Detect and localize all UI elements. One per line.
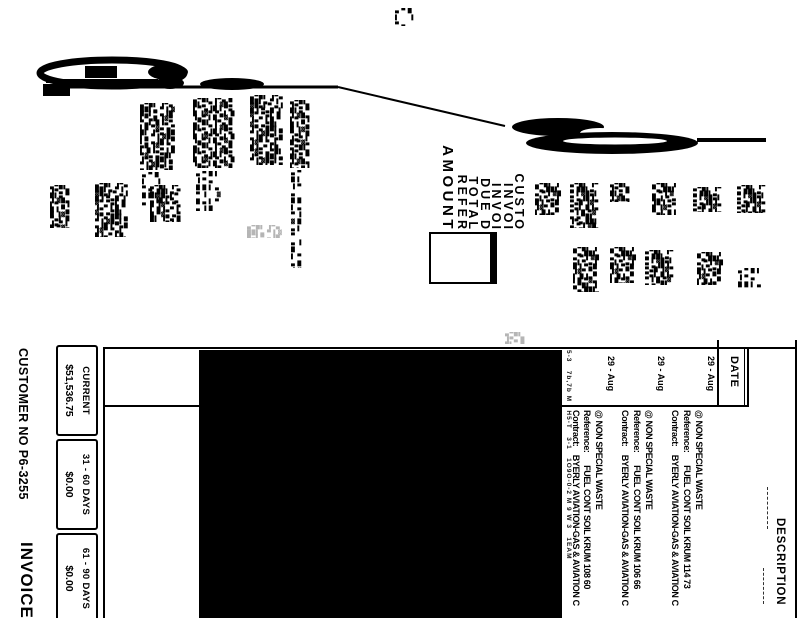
row-date: 29 - Aug [606,356,616,406]
amount-enclosed-box [429,232,497,284]
row-date: 29 - Aug [656,356,666,406]
row-contract: Contract: BYERLY AVIATION-GAS & AVIATION… [571,410,581,618]
remit-label-reference: REFER [456,175,467,232]
aging-header: 31 - 60 DAYS [80,454,91,515]
date-cell-top-border-2 [744,347,745,407]
remit-stub-labels: CUSTO INVOI INVOI DUE D TOTAL REFER AMOU… [439,95,524,232]
aging-header: CURRENT [80,366,91,415]
row-item: @ NON SPECIAL WASTE [594,410,604,618]
aging-value: $0.00 [63,565,75,591]
row-contract: Contract: BYERLY AVIATION-GAS & AVIATION… [670,410,680,618]
remit-label-due-date: DUE D [478,178,489,232]
date-cell-bottom-border [717,340,719,407]
dotted-rule [763,568,764,604]
scan-artifact-text: 5-3 7b,7b M H5-T 3-1 1O9O-0-2 M 9 W 3 1E… [561,350,572,614]
date-cell-top-border [747,347,749,407]
aging-value: $0.00 [63,471,75,497]
scanned-invoice-document: CUSTO INVOI INVOI DUE D TOTAL REFER AMOU… [0,0,800,618]
table-bottom-border [103,347,105,618]
col-header-description: DESCRIPTION [774,518,786,605]
row-reference: Reference: FUEL CONT SOIL KRUM 114 73 [682,410,692,618]
row-reference: Reference: FUEL CONT SOIL KRUM 108 60 [582,410,592,618]
redaction-block [199,350,562,618]
aging-cell-61-90: 61 - 90 DAYS $0.00 [56,533,98,618]
remit-label-amount: AMOUNT [439,145,455,232]
table-top-border [795,340,797,618]
invoice-title: INVOICE [16,542,36,618]
dotted-rule [767,487,768,529]
row-contract: Contract: BYERLY AVIATION-GAS & AVIATION… [620,410,630,618]
aging-cell-31-60: 31 - 60 DAYS $0.00 [56,439,98,530]
aging-value: $51,536.75 [63,364,75,417]
row-item: @ NON SPECIAL WASTE [644,410,654,618]
aging-header: 61 - 90 DAYS [80,548,91,609]
aging-cell-current: CURRENT $51,536.75 [56,345,98,436]
col-header-date: DATE [728,356,740,388]
customer-number: CUSTOMER NO P6-3255 [16,348,30,500]
table-left-border [104,347,796,349]
row-item: @ NON SPECIAL WASTE [694,410,704,618]
row-date: 29 - Aug [706,356,716,406]
row-reference: Reference: FUEL CONT SOIL KRUM 106 66 [632,410,642,618]
invoice-page-content: CUSTO INVOI INVOI DUE D TOTAL REFER AMOU… [0,0,800,618]
